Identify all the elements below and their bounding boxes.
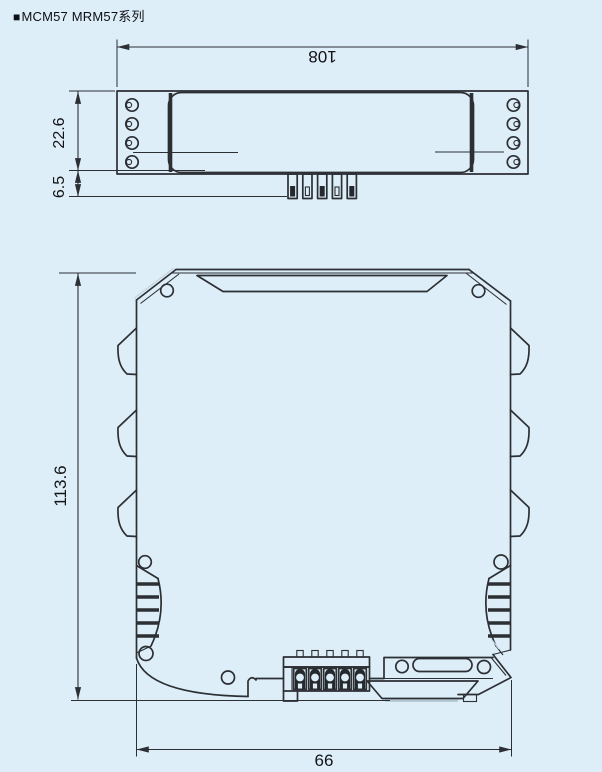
dim-length-label: 108 (308, 47, 336, 66)
top-view-housing-outline (117, 91, 528, 174)
terminal-block (284, 651, 370, 702)
hole-bottom-mid (396, 660, 408, 672)
mounting-hole-top-left (161, 284, 174, 297)
terminal-cells (294, 669, 367, 690)
screw-terminals-right (507, 99, 519, 168)
side-tabs-left (118, 328, 137, 537)
dim-pin-depth-label: 6.5 (51, 176, 68, 198)
hole-bottom-left (222, 671, 235, 684)
top-view (117, 91, 528, 199)
screw-terminals-left (126, 99, 138, 168)
technical-drawing: 108 22.6 6.5 (0, 0, 602, 772)
bottom-right-assembly (367, 655, 511, 702)
dimension-length-108: 108 (117, 40, 528, 88)
mounting-hole-top-right (472, 285, 485, 298)
dim-body-width-label: 22.6 (51, 117, 68, 148)
side-tabs-right (511, 328, 530, 537)
din-slot (413, 659, 472, 672)
label-recess (197, 276, 447, 292)
dimension-height-113-6: 113.6 (51, 273, 390, 701)
rail-clip-right (486, 555, 511, 655)
dim-height-label: 113.6 (51, 465, 70, 506)
bottom-curve (137, 658, 249, 697)
din-foot (367, 681, 478, 699)
front-view (118, 268, 529, 702)
rail-clip-left (137, 556, 162, 661)
connector-pins (288, 174, 356, 199)
top-view-body (169, 93, 474, 173)
hole-bottom-right (478, 661, 491, 674)
dim-depth-label: 66 (315, 751, 334, 770)
